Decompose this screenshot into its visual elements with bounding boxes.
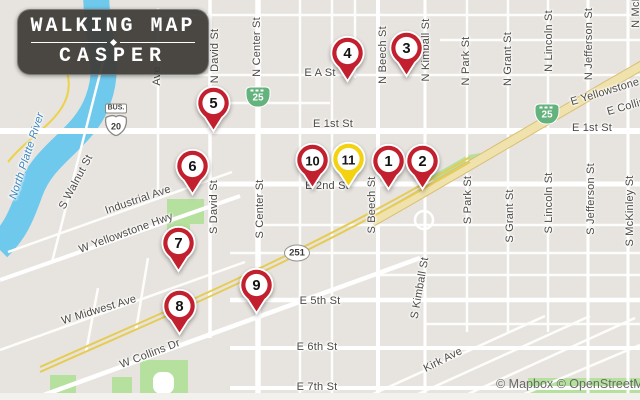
map-canvas[interactable]: E A StE 1st StE 1st StE 2nd StE 5th StE …	[0, 0, 640, 400]
logo-title-line1: WALKING MAP	[30, 16, 195, 38]
map-pin-11[interactable]: 11	[330, 141, 367, 194]
map-pin-10[interactable]: 10	[294, 142, 331, 195]
svg-text:1: 1	[384, 153, 392, 169]
svg-text:6: 6	[188, 158, 196, 174]
logo-title-line2: CASPER	[59, 46, 167, 68]
map-pin-4[interactable]: 4	[329, 35, 366, 88]
map-pin-5[interactable]: 5	[195, 85, 232, 138]
svg-text:11: 11	[341, 152, 355, 167]
svg-text:5: 5	[209, 95, 217, 111]
svg-text:4: 4	[343, 45, 352, 61]
map-pin-8[interactable]: 8	[161, 288, 198, 341]
map-pin-1[interactable]: 1	[370, 143, 407, 196]
map-pin-9[interactable]: 9	[238, 267, 275, 320]
svg-text:3: 3	[402, 40, 410, 56]
map-pin-7[interactable]: 7	[160, 225, 197, 278]
logo-divider	[31, 40, 194, 45]
svg-text:8: 8	[175, 298, 183, 314]
map-pin-2[interactable]: 2	[404, 143, 441, 196]
map-attribution[interactable]: © Mapbox © OpenStreetMap	[496, 377, 640, 391]
walking-map-logo: WALKING MAP CASPER	[17, 9, 209, 75]
svg-text:9: 9	[252, 277, 260, 293]
svg-text:10: 10	[305, 153, 319, 168]
svg-text:2: 2	[418, 153, 426, 169]
map-pin-3[interactable]: 3	[388, 30, 425, 83]
svg-text:7: 7	[174, 235, 182, 251]
map-pin-6[interactable]: 6	[174, 148, 211, 201]
